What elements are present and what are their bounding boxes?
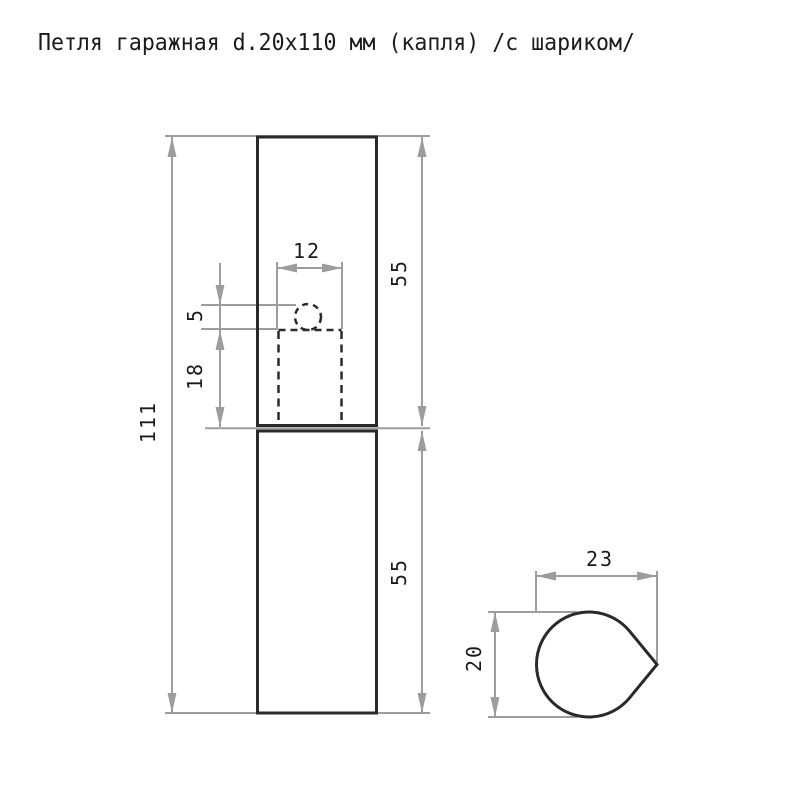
- arrowhead-up-icon: [216, 330, 225, 350]
- drawing-title: Петля гаражная d.20x110 мм (капля) /с ша…: [38, 30, 635, 56]
- arrowhead-left-icon: [536, 572, 556, 581]
- arrowhead-up-icon: [491, 612, 500, 632]
- teardrop-profile-outline: [536, 612, 657, 717]
- arrowhead-down-icon: [418, 406, 427, 426]
- dim-label-lower-55: 55: [387, 558, 411, 586]
- dim-label-23: 23: [586, 547, 614, 571]
- arrowhead-right-icon: [637, 572, 657, 581]
- arrowhead-up-icon: [168, 137, 177, 157]
- arrowhead-down-icon: [216, 407, 225, 427]
- arrowhead-down-icon: [418, 693, 427, 713]
- arrowhead-left-icon: [277, 264, 297, 273]
- dim-label-12: 12: [293, 239, 321, 263]
- technical-drawing: Петля гаражная d.20x110 мм (капля) /с ша…: [0, 0, 800, 800]
- teardrop-cross-section: [536, 612, 657, 717]
- dimension-lower-55: [418, 431, 427, 713]
- dimension-lines: [165, 136, 657, 717]
- dimension-5-18: [201, 263, 296, 427]
- arrowhead-down-icon: [168, 693, 177, 713]
- hinge-front-view: [258, 137, 377, 713]
- drawing-sheet: Петля гаражная d.20x110 мм (капля) /с ша…: [0, 0, 800, 800]
- dimension-upper-55: [418, 137, 427, 426]
- dim-label-111: 111: [136, 401, 160, 443]
- arrowhead-down-icon: [491, 697, 500, 717]
- dimension-profile-20: [488, 612, 577, 717]
- dim-label-5: 5: [183, 308, 207, 322]
- upper-barrel-outline: [258, 137, 377, 426]
- dim-label-upper-55: 55: [387, 259, 411, 287]
- dimension-pin-12: [277, 262, 342, 329]
- dim-label-18: 18: [183, 362, 207, 390]
- lower-barrel-outline: [258, 431, 377, 713]
- arrowhead-right-icon: [322, 264, 342, 273]
- arrowhead-up-icon: [418, 137, 427, 157]
- dimension-profile-23: [536, 571, 657, 662]
- dim-label-20: 20: [462, 644, 486, 672]
- hidden-ball-circle: [295, 304, 321, 330]
- arrowhead-up-icon: [418, 431, 427, 451]
- arrowhead-down-icon: [216, 285, 225, 305]
